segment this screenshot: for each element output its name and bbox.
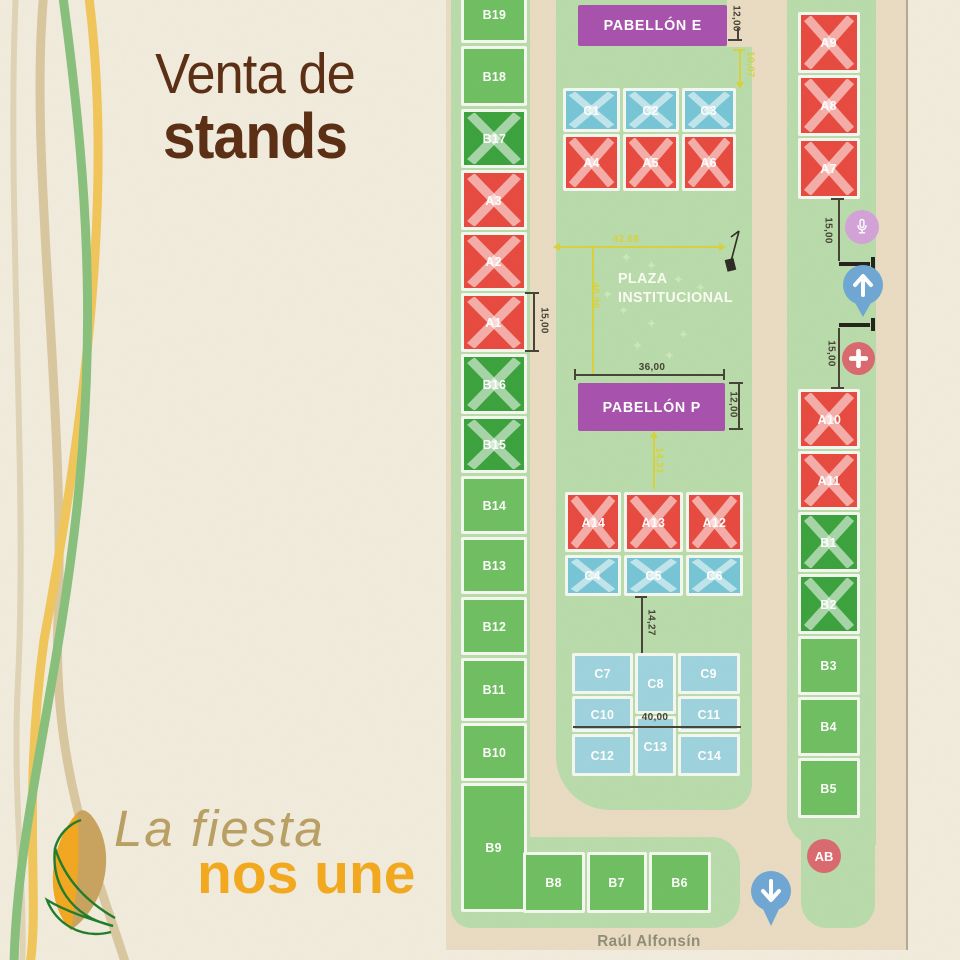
stand-label: C3 [701,103,717,118]
stand-a14[interactable]: A14 [565,492,621,552]
poster-title: Venta de stands [101,44,408,168]
stand-c2[interactable]: C2 [623,88,679,132]
stand-label: B18 [482,69,506,84]
stand-label: B11 [483,682,506,697]
stand-label: C2 [643,103,659,118]
gate-mark [871,318,875,331]
stand-b14[interactable]: B14 [461,476,527,534]
stand-c3[interactable]: C3 [682,88,736,132]
stand-label: A14 [581,515,605,530]
stand-a2[interactable]: A2 [461,232,527,291]
stand-label: B3 [821,658,837,673]
stand-label: B9 [486,840,502,855]
stand-b19[interactable]: B19 [461,0,527,43]
dimension-line [573,726,741,728]
stand-c13[interactable]: C13 [635,716,676,776]
stand-label: B10 [482,745,506,760]
stand-a12[interactable]: A12 [686,492,743,552]
dimension-line [592,248,594,375]
dimension-line [635,596,647,598]
stand-label: B14 [482,498,506,513]
dimension-line [525,350,539,352]
ab-badge-label: AB [815,849,834,864]
dimension-line [739,50,741,84]
stand-label: B15 [482,437,506,452]
tagline-line-2: nos une [197,841,416,907]
dimension-line [653,434,655,489]
stand-label: A7 [821,161,837,176]
stand-a5[interactable]: A5 [623,134,679,191]
stand-c14[interactable]: C14 [678,734,740,776]
stand-label: C12 [591,748,615,763]
stand-label: B1 [821,535,837,550]
plaza-label: PLAZA INSTITUCIONAL [618,270,733,308]
stand-a6[interactable]: A6 [682,134,736,191]
stand-label: A8 [821,98,837,113]
stand-label: B4 [821,719,837,734]
stand-b5[interactable]: B5 [798,758,860,818]
stand-label: C14 [697,748,721,763]
street-label: Raúl Alfonsín [568,933,730,950]
dimension-line [831,198,844,200]
stand-a4[interactable]: A4 [563,134,620,191]
pabellon-e[interactable]: PABELLÓN E [578,5,727,46]
dimension-line [574,369,576,380]
stand-c5[interactable]: C5 [624,555,683,596]
plaza-label-line1: PLAZA [618,270,733,289]
stand-label: B6 [672,875,688,890]
stand-label: A11 [818,473,841,488]
dimension-line [723,369,725,380]
stand-c4[interactable]: C4 [565,555,621,596]
stand-label: B5 [821,781,837,796]
entrance-north-pin [841,264,885,318]
stand-b10[interactable]: B10 [461,723,527,781]
plaza-label-line2: INSTITUCIONAL [618,289,733,308]
stand-b3[interactable]: B3 [798,636,860,695]
stand-label: B19 [482,7,506,22]
dimension-line [831,387,844,389]
dimension-line [729,382,743,384]
stand-a9[interactable]: A9 [798,12,860,73]
stand-b2[interactable]: B2 [798,574,860,634]
stand-b12[interactable]: B12 [461,597,527,655]
stand-a11[interactable]: A11 [798,451,860,510]
dimension-arrow [719,243,726,251]
stand-c1[interactable]: C1 [563,88,620,132]
stand-label: C8 [647,676,663,691]
stand-label: C9 [701,666,717,681]
stand-a13[interactable]: A13 [624,492,683,552]
ab-badge: AB [807,839,841,873]
stand-c7[interactable]: C7 [572,653,633,694]
stand-c6[interactable]: C6 [686,555,743,596]
dimension-line [729,428,743,430]
title-line-2: stands [101,104,408,168]
stand-label: A1 [486,315,502,330]
stand-c8[interactable]: C8 [635,653,676,714]
stand-a1[interactable]: A1 [461,293,527,352]
dimension-stand-a1-height: 15,00 [539,299,550,343]
dimension-line [838,328,840,388]
dimension-pabellon-e-height: 12,00 [731,0,742,41]
stand-label: A4 [583,155,599,170]
pabellon-e-label: PABELLÓN E [603,17,701,34]
stand-label: C1 [583,103,599,118]
dimension-line [533,293,535,352]
dimension-arrow [650,431,658,438]
stand-label: B12 [482,619,506,634]
stand-label: B16 [482,377,506,392]
stand-b9[interactable]: B9 [461,783,527,912]
title-line-1: Venta de [101,44,408,104]
entrance-south-pin [749,870,793,928]
stand-a8[interactable]: A8 [798,75,860,136]
stand-a7[interactable]: A7 [798,138,860,199]
flagpole-icon [718,228,744,278]
pabellon-p-label: PABELLÓN P [602,399,700,416]
site-map: ✦✦✦✦✦✦✦✦✦✦ PLAZA INSTITUCIONAL PABELLÓN … [446,0,908,950]
stand-label: C13 [644,739,668,754]
stand-a3[interactable]: A3 [461,170,527,230]
stand-b11[interactable]: B11 [461,658,527,721]
dimension-arrow [553,243,560,251]
microphone-icon [852,217,872,237]
dimension-line [641,597,643,653]
dimension-line [525,292,539,294]
stand-label: A5 [643,155,659,170]
stand-b13[interactable]: B13 [461,537,527,594]
stand-b16[interactable]: B16 [461,354,527,414]
plus-icon [849,349,868,368]
stand-a10[interactable]: A10 [798,389,860,449]
stand-b1[interactable]: B1 [798,512,860,572]
stand-b8[interactable]: B8 [523,852,585,913]
pabellon-p[interactable]: PABELLÓN P [578,383,725,431]
stand-label: A10 [817,412,841,427]
stand-label: C6 [706,568,722,583]
stand-label: C4 [585,568,601,583]
stand-label: A13 [642,515,666,530]
dimension-line [557,246,723,248]
stand-label: B17 [482,131,506,146]
dimension-line [838,199,840,261]
dimension-line [728,39,742,41]
stand-label: B2 [821,597,837,612]
stand-b17[interactable]: B17 [461,109,527,168]
stand-b18[interactable]: B18 [461,46,527,106]
stand-c9[interactable]: C9 [678,653,740,694]
dimension-line [738,383,740,430]
stand-b7[interactable]: B7 [587,852,647,913]
stand-label: A3 [486,193,502,208]
stand-label: C7 [594,666,610,681]
stand-label: C11 [698,707,721,722]
stand-c12[interactable]: C12 [572,734,633,776]
first-aid-marker [842,342,875,375]
gate-mark [839,323,870,327]
stand-label: A2 [486,254,502,269]
microphone-marker [845,210,879,244]
stand-b4[interactable]: B4 [798,697,860,756]
stand-b6[interactable]: B6 [649,852,711,913]
dimension-arrow [736,82,744,89]
stand-label: B7 [609,875,625,890]
stand-label: C10 [591,707,615,722]
dimension-line [575,374,725,376]
stand-label: A6 [701,155,717,170]
stand-b15[interactable]: B15 [461,416,527,473]
stand-label: A9 [821,35,837,50]
stand-label: B8 [546,875,562,890]
stand-label: B13 [482,558,506,573]
stand-label: C5 [645,568,661,583]
stand-label: A12 [703,515,727,530]
